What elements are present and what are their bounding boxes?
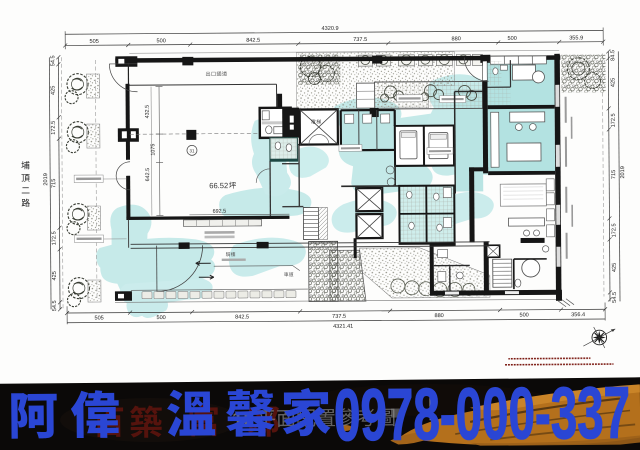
svg-text:4321.41: 4321.41 [333,324,353,330]
svg-text:737.5: 737.5 [332,314,346,320]
svg-text:842.5: 842.5 [246,38,260,44]
svg-text:2019: 2019 [620,166,626,178]
svg-text:54.5: 54.5 [612,292,618,303]
svg-text:432.5: 432.5 [145,105,151,119]
svg-text:500: 500 [507,36,516,42]
svg-text:500: 500 [519,313,528,319]
svg-text:355.9: 355.9 [569,35,583,41]
svg-text:425: 425 [52,271,58,280]
svg-text:172.5: 172.5 [611,113,617,127]
svg-text:4320.9: 4320.9 [322,26,339,32]
svg-text:505: 505 [90,39,99,45]
svg-text:425: 425 [612,263,618,272]
svg-text:172.5: 172.5 [611,223,617,237]
svg-text:692.5: 692.5 [213,209,227,215]
svg-text:737.5: 737.5 [353,37,367,43]
svg-text:54.5: 54.5 [50,55,56,66]
svg-text:880: 880 [434,313,443,319]
svg-text:1075: 1075 [150,144,156,156]
svg-text:0978-000-337: 0978-000-337 [334,373,631,450]
svg-text:66.52: 66.52 [209,181,228,190]
svg-text:500: 500 [156,315,165,321]
svg-text:31: 31 [189,148,195,153]
svg-text:500: 500 [157,38,166,44]
svg-text:425: 425 [610,78,616,87]
svg-text:642.5: 642.5 [145,168,151,182]
svg-text:842.5: 842.5 [235,314,249,320]
svg-text:715: 715 [51,179,57,188]
svg-text:880: 880 [451,36,460,42]
svg-text:505: 505 [94,315,103,321]
svg-text:84.5: 84.5 [610,50,616,61]
svg-text:172.5: 172.5 [52,231,58,245]
svg-text:172.5: 172.5 [51,121,57,135]
svg-text:2019: 2019 [43,173,49,185]
svg-text:356.4: 356.4 [571,312,585,318]
svg-text:425: 425 [51,86,57,95]
svg-text:54.5: 54.5 [52,300,58,311]
svg-text:715: 715 [611,170,617,179]
